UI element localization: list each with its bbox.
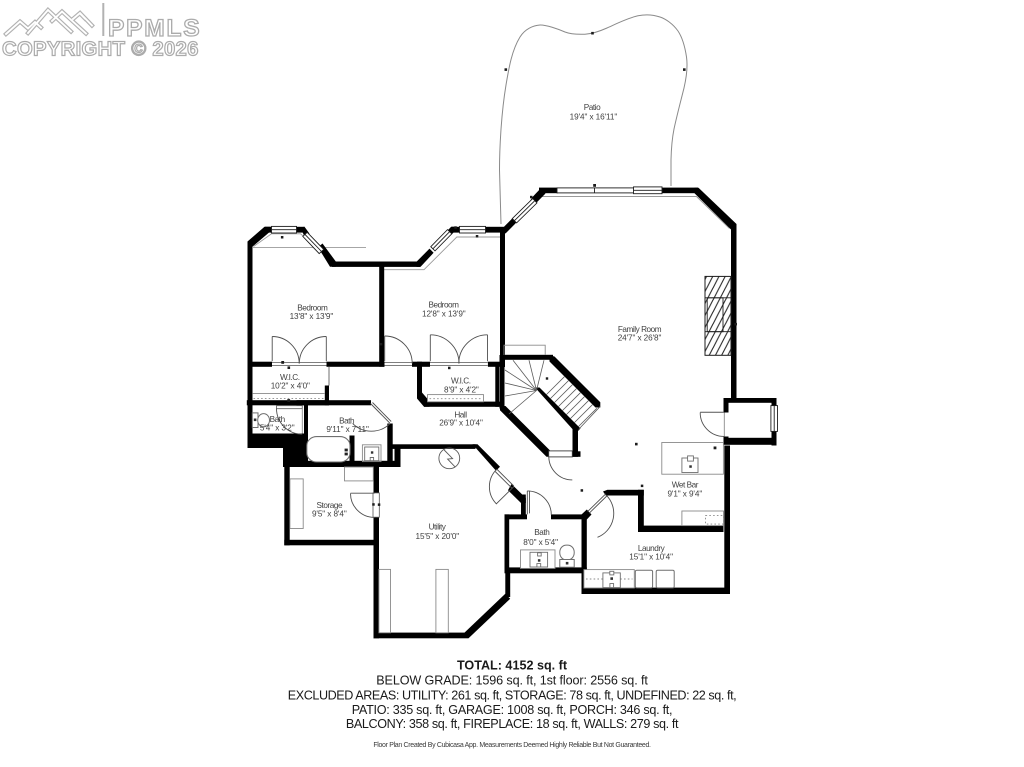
svg-text:Utility: Utility <box>429 523 447 532</box>
svg-text:24'7" x 26'8": 24'7" x 26'8" <box>618 333 662 342</box>
svg-text:Patio: Patio <box>584 103 601 112</box>
svg-text:Wet Bar: Wet Bar <box>672 481 699 490</box>
svg-text:PATIO: 335 sq. ft, GARAGE: 100: PATIO: 335 sq. ft, GARAGE: 1008 sq. ft, … <box>352 703 673 717</box>
svg-text:15'5" x 20'0": 15'5" x 20'0" <box>415 532 459 541</box>
svg-text:Bath: Bath <box>339 416 355 425</box>
svg-text:13'8" x 13'9": 13'8" x 13'9" <box>290 312 334 321</box>
svg-text:COPYRIGHT © 2026: COPYRIGHT © 2026 <box>2 38 199 60</box>
svg-text:10'2" x 4'0": 10'2" x 4'0" <box>271 381 310 390</box>
svg-text:Floor Plan Created By Cubicasa: Floor Plan Created By Cubicasa App. Meas… <box>373 742 651 749</box>
svg-text:BELOW GRADE: 1596 sq. ft, 1st: BELOW GRADE: 1596 sq. ft, 1st floor: 255… <box>376 674 648 688</box>
svg-text:12'8" x 13'9": 12'8" x 13'9" <box>422 310 466 319</box>
svg-text:TOTAL: 4152 sq. ft: TOTAL: 4152 sq. ft <box>457 658 568 672</box>
svg-text:9'11" x 7'11": 9'11" x 7'11" <box>326 425 369 434</box>
svg-text:5'4" x 3'2": 5'4" x 3'2" <box>260 423 295 432</box>
svg-text:19'4" x 16'11": 19'4" x 16'11" <box>570 113 618 122</box>
svg-text:9'1" x 9'4": 9'1" x 9'4" <box>667 489 702 498</box>
svg-text:9'5" x 8'4": 9'5" x 8'4" <box>312 509 347 518</box>
svg-text:8'0" x 5'4": 8'0" x 5'4" <box>523 538 558 547</box>
svg-text:26'9" x 10'4": 26'9" x 10'4" <box>439 419 483 428</box>
svg-text:Bedroom: Bedroom <box>428 301 459 310</box>
svg-text:8'9" x 4'2": 8'9" x 4'2" <box>444 386 479 395</box>
svg-text:BALCONY: 358 sq. ft, FIREPLACE: BALCONY: 358 sq. ft, FIREPLACE: 18 sq. f… <box>346 717 679 731</box>
svg-text:Bath: Bath <box>534 528 550 537</box>
svg-text:W.I.C.: W.I.C. <box>451 376 471 385</box>
svg-text:15'1" x 10'4": 15'1" x 10'4" <box>629 553 673 562</box>
svg-text:EXCLUDED AREAS: UTILITY: 261 s: EXCLUDED AREAS: UTILITY: 261 sq. ft, STO… <box>288 688 736 702</box>
